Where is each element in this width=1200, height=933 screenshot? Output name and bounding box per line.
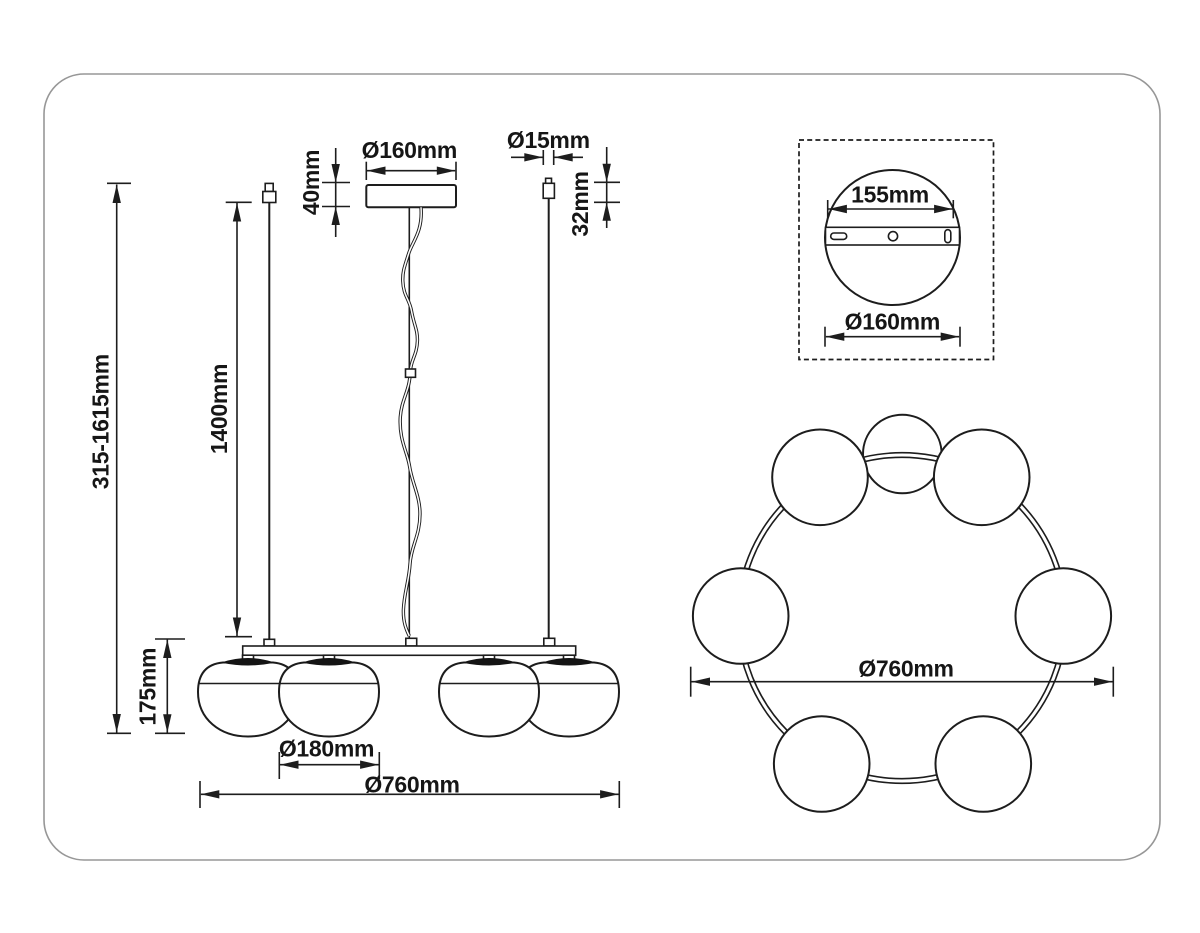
top-shade-left (693, 568, 789, 664)
ring-bar (243, 646, 576, 655)
mounting-bracket (826, 227, 960, 245)
dim-plate-diameter-label: Ø160mm (845, 308, 940, 334)
dim-topview-diameter-label: Ø760mm (858, 656, 953, 682)
dim-wire-diameter-label: Ø15mm (507, 127, 590, 153)
dim-canopy-height-label: 40mm (298, 150, 324, 215)
dim-cable-length-label: 1400mm (206, 364, 232, 454)
shade-4-cap (544, 659, 594, 666)
dim-canopy-diameter: Ø160mm (362, 137, 457, 180)
dim-connector-height: 32mm (567, 147, 620, 237)
front-view: 315-1615mm 1400mm 40mm (88, 127, 621, 808)
shade-stems (243, 655, 575, 661)
shade-2-cap (304, 659, 354, 666)
top-view: Ø760mm (691, 415, 1114, 812)
top-shade-bottom-left (774, 716, 870, 812)
dim-plate-diameter: Ø160mm (825, 308, 960, 346)
dim-cable-length: 1400mm (206, 202, 252, 636)
canopy (366, 185, 456, 207)
dim-overall-diameter-label: Ø760mm (364, 772, 459, 798)
dim-connector-height-label: 32mm (567, 171, 593, 236)
top-shade-bottom-right (936, 716, 1032, 812)
dim-overall-height: 315-1615mm (88, 183, 132, 733)
glass-shades-front (198, 659, 619, 737)
dim-canopy-height: 40mm (298, 148, 350, 237)
dim-overall-diameter-front: Ø760mm (200, 772, 619, 809)
shade-3 (439, 663, 539, 737)
pendant-lamp-dimension-drawing: 315-1615mm 1400mm 40mm (0, 0, 1200, 933)
dim-shade-height-label: 175mm (135, 648, 161, 726)
top-shade-rear (863, 415, 942, 494)
dim-overall-height-label: 315-1615mm (88, 354, 114, 489)
left-suspension-wire (263, 183, 276, 646)
shade-3-cap (464, 659, 514, 666)
central-cable (400, 207, 421, 646)
top-shade-right (1016, 568, 1112, 664)
dim-shade-diameter-label: Ø180mm (279, 736, 374, 762)
dim-wire-diameter: Ø15mm (507, 127, 590, 165)
shade-2 (279, 663, 379, 737)
dimension-drawing-page: 315-1615mm 1400mm 40mm (0, 0, 1200, 933)
shade-1-cap (223, 659, 273, 666)
ceiling-mount-detail: 155mm Ø160mm (799, 140, 994, 360)
dim-canopy-diameter-label: Ø160mm (362, 137, 457, 163)
top-shade-top-right (934, 430, 1030, 526)
cord-clamp (406, 369, 416, 377)
dim-shade-height: 175mm (135, 639, 185, 733)
top-shade-top-left (772, 430, 868, 526)
right-suspension-wire (543, 178, 555, 646)
dim-bracket-width-label: 155mm (851, 182, 929, 208)
